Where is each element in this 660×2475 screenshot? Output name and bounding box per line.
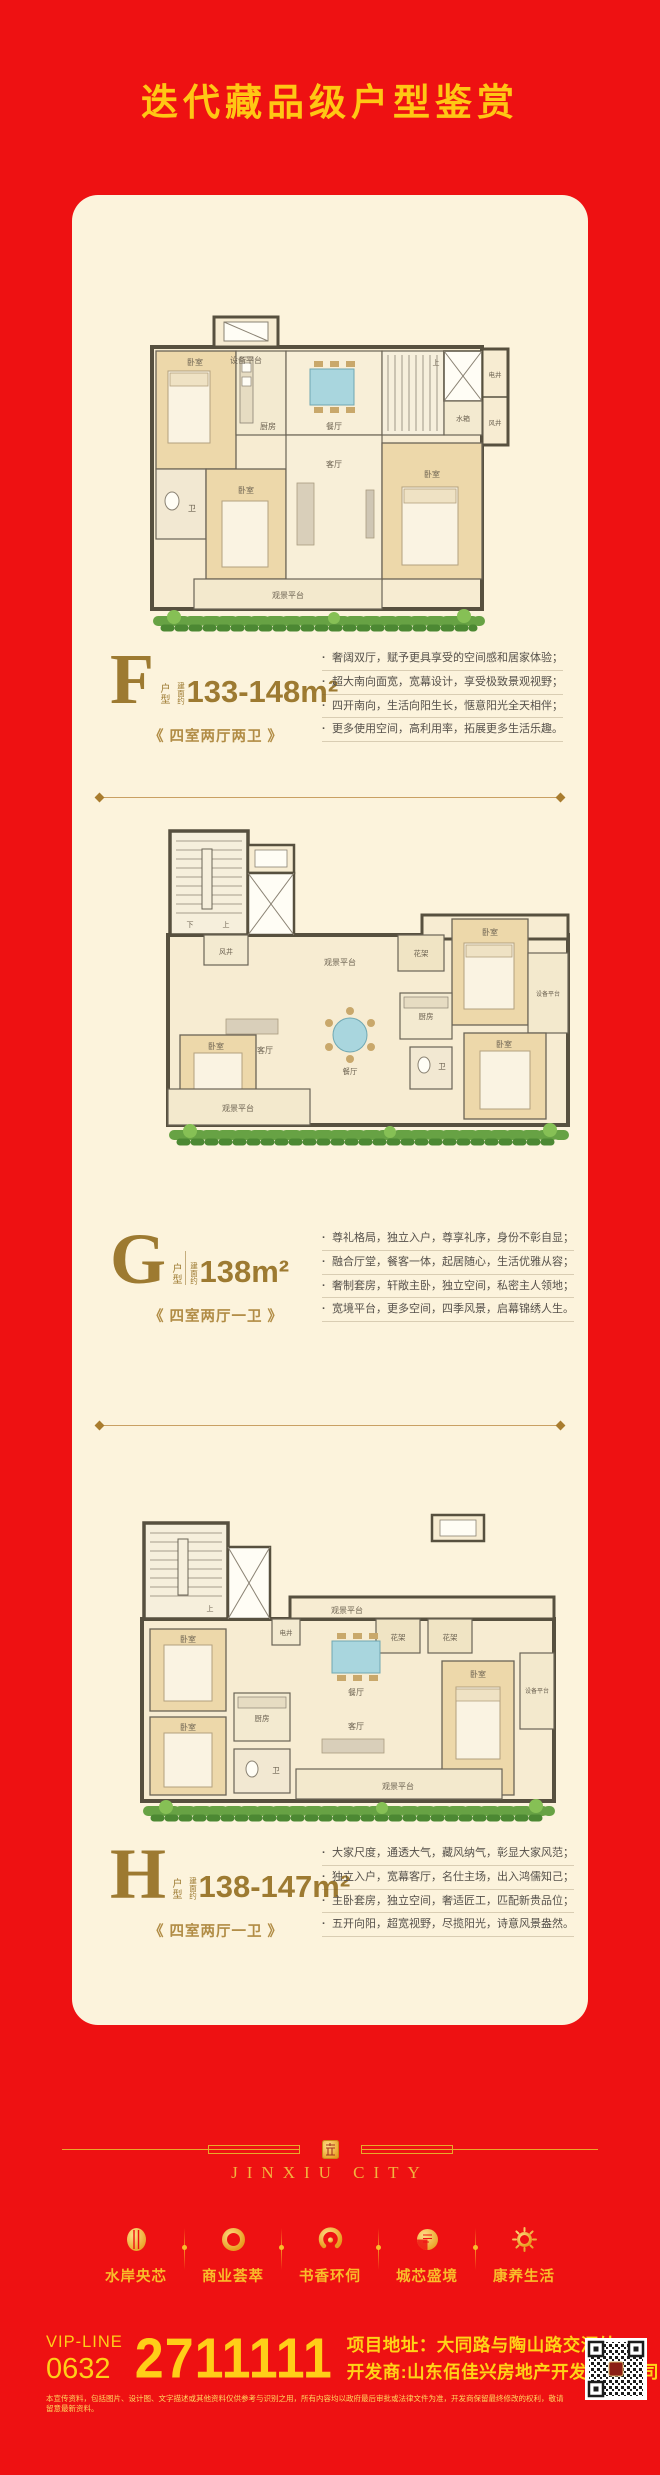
section-divider	[96, 793, 564, 802]
room-label: 餐厅	[348, 1688, 364, 1697]
area-prefix: 建面约	[177, 682, 185, 705]
bullet: 奢阔双厅，赋予更具享受的空间感和居家体验；	[322, 652, 563, 671]
vip-block: VIP-LINE 0632	[46, 2334, 123, 2385]
room-label: 厨房	[255, 1713, 270, 1723]
unit-bullets-h: 大家尺度，通透大气，藏风纳气，彰显大家风范； 独立入户，宽幕客厅，名仕主场，出入…	[322, 1847, 574, 1942]
bullet: 五开向阳，超宽视野，尽揽阳光，诗意风景盎然。	[322, 1918, 574, 1937]
room-label: 花架	[414, 948, 429, 958]
unit-area-f: 133-148m²	[186, 676, 338, 707]
unit-info-g: G 户型 建面约 138m² 《 四室两厅一卫 》 尊礼格局，独立入户，尊享礼序…	[110, 1230, 548, 1327]
room-label: 观景平台	[272, 590, 304, 600]
unit-letter-f: F	[110, 650, 154, 709]
diamond-ornament	[556, 793, 566, 803]
room-label: 厨房	[260, 421, 276, 431]
floorplan-h: 上 观景平台 花架 花架 设备平台 电井 卧室 卧室 餐厅 客厅 厨房 卫 卧室…	[132, 1511, 577, 1841]
qr-code	[585, 2338, 647, 2400]
room-label: 客厅	[257, 1045, 273, 1055]
bullet: 融合厅堂，餐客一体，起居随心，生活优雅从容；	[322, 1256, 574, 1275]
feature-label: 城芯盛境	[379, 2265, 475, 2286]
floorplan-f: 设备平台 水箱 电井 风井 上 卧室 卫 卧室 厨房 餐厅 客厅 卧室 观景平台	[134, 305, 514, 657]
contact-row: VIP-LINE 0632 2711111 项目地址：大同路与陶山路交汇处 开发…	[46, 2332, 659, 2386]
feature-label: 水岸央芯	[88, 2265, 184, 2286]
area-prefix: 建面约	[190, 1262, 198, 1285]
feature-label: 书香环伺	[282, 2265, 378, 2286]
feature-separator	[281, 2228, 282, 2270]
bullet: 独立入户，宽幕客厅，名仕主场，出入鸿儒知己；	[322, 1871, 574, 1890]
unit-bullets-f: 奢阔双厅，赋予更具享受的空间感和居家体验； 超大南向面宽，宽幕设计，享受极致景观…	[322, 652, 563, 747]
content-card: 设备平台 水箱 电井 风井 上 卧室 卫 卧室 厨房 餐厅 客厅 卧室 观景平台…	[72, 195, 588, 2025]
unit-left-h: H 户型 建面约 138-147m² 《 四室两厅一卫 》	[110, 1845, 322, 1942]
feature-label: 商业荟萃	[185, 2265, 281, 2286]
unit-left-f: F 户型 建面约 133-148m² 《 四室两厅两卫 》	[110, 650, 322, 747]
footer-ornament-row	[62, 2140, 598, 2158]
room-label: 卧室	[180, 1722, 196, 1732]
feature-water: 水岸央芯	[88, 2226, 184, 2286]
unit-info-f: F 户型 建面约 133-148m² 《 四室两厅两卫 》 奢阔双厅，赋予更具享…	[110, 650, 548, 747]
room-label: 上	[223, 920, 230, 929]
feature-label: 康养生活	[476, 2265, 572, 2286]
unit-suffix: 户型	[170, 1878, 180, 1900]
unit-area-g: 138m²	[200, 1256, 290, 1287]
room-label: 卧室	[180, 1634, 196, 1644]
brand-name: JINXIU CITY	[0, 2163, 660, 2183]
feature-separator	[378, 2228, 379, 2270]
ornament-bar	[361, 2145, 453, 2154]
room-label: 设备平台	[230, 355, 262, 365]
room-label: 卧室	[238, 485, 254, 495]
room-label: 卧室	[208, 1041, 224, 1051]
bullet: 超大南向面宽，宽幕设计，享受极致景观视野；	[322, 676, 563, 695]
bullet: 奢制套房，轩敞主卧，独立空间，私密主人领地；	[322, 1280, 574, 1299]
feature-city: 城芯盛境	[379, 2226, 475, 2286]
book-ring-icon	[317, 2226, 344, 2253]
unit-info-h: H 户型 建面约 138-147m² 《 四室两厅一卫 》 大家尺度，通透大气，…	[110, 1845, 548, 1942]
page-title: 迭代藏品级户型鉴赏	[0, 72, 660, 126]
qr-center-logo	[609, 2362, 623, 2376]
water-core-icon	[123, 2226, 150, 2253]
room-label: 客厅	[326, 459, 342, 469]
room-label: 卫	[272, 1766, 280, 1775]
unit-rooms-g: 《 四室两厅一卫 》	[110, 1305, 322, 1326]
room-label: 观景平台	[222, 1103, 254, 1113]
room-label: 设备平台	[536, 990, 560, 998]
feature-books: 书香环伺	[282, 2226, 378, 2286]
room-label: 卧室	[496, 1039, 512, 1049]
disclaimer-text: 本宣传资料，包括图片、设计图、文字描述或其他资料仅供参考与识别之用，所有内容均以…	[46, 2394, 566, 2414]
room-label: 风井	[489, 418, 503, 427]
brand-seal-icon	[322, 2140, 339, 2159]
room-label: 卧室	[187, 357, 203, 367]
room-label: 观景平台	[382, 1781, 414, 1791]
area-code: 0632	[46, 2354, 123, 2384]
divider-line	[185, 1251, 186, 1285]
room-label: 卧室	[424, 469, 440, 479]
bullet: 主卧套房，独立空间，奢适匠工，匹配新贵品位；	[322, 1895, 574, 1914]
unit-rooms-f: 《 四室两厅两卫 》	[110, 725, 322, 746]
unit-letter-h: H	[110, 1845, 166, 1904]
room-label: 观景平台	[324, 957, 356, 967]
room-label: 花架	[391, 1632, 406, 1642]
floorplan-g: 下 上 风井 观景平台 花架 卧室 设备平台 客厅 餐厅 厨房 卫 卧室 卧室 …	[160, 823, 580, 1151]
room-label: 餐厅	[343, 1067, 358, 1076]
room-label: 设备平台	[525, 1687, 549, 1695]
ornament-bar	[208, 2145, 300, 2154]
unit-letter-g: G	[110, 1230, 166, 1289]
room-label: 水箱	[456, 414, 470, 423]
feature-separator	[184, 2228, 185, 2270]
commerce-ring-icon	[220, 2226, 247, 2253]
diamond-ornament	[556, 1421, 566, 1431]
section-divider	[96, 1421, 564, 1430]
room-label: 厨房	[419, 1011, 434, 1021]
room-label: 下	[187, 921, 194, 929]
unit-suffix: 户型	[170, 1263, 180, 1285]
feature-wellness: 康养生活	[476, 2226, 572, 2286]
room-label: 卫	[438, 1062, 446, 1071]
bullet: 四开南向，生活向阳生长，惬意阳光全天相伴；	[322, 700, 563, 719]
room-label: 卧室	[482, 927, 498, 937]
features-row: 水岸央芯 商业荟萃 书香环伺 城芯盛境 康养生活	[30, 2226, 630, 2286]
bullet: 尊礼格局，独立入户，尊享礼序，身份不彰自显；	[322, 1232, 574, 1251]
unit-rooms-h: 《 四室两厅一卫 》	[110, 1920, 322, 1941]
diamond-ornament	[95, 1421, 105, 1431]
bullet: 大家尺度，通透大气，藏风纳气，彰显大家风范；	[322, 1847, 574, 1866]
room-label: 上	[207, 1604, 214, 1613]
room-label: 上	[433, 358, 440, 367]
bullet: 更多使用空间，高利用率，拓展更多生活乐趣。	[322, 723, 563, 742]
unit-bullets-g: 尊礼格局，独立入户，尊享礼序，身份不彰自显； 融合厅堂，餐客一体，起居随心，生活…	[322, 1232, 574, 1327]
room-label: 客厅	[348, 1721, 364, 1731]
area-prefix: 建面约	[189, 1877, 197, 1900]
room-label: 花架	[443, 1632, 458, 1642]
room-label: 电井	[489, 370, 503, 379]
diamond-ornament	[95, 793, 105, 803]
bullet: 宽境平台，更多空间，四季风景，启幕锦绣人生。	[322, 1303, 574, 1322]
room-label: 卧室	[470, 1669, 486, 1679]
unit-left-g: G 户型 建面约 138m² 《 四室两厅一卫 》	[110, 1230, 322, 1327]
room-label: 餐厅	[326, 422, 342, 431]
room-label: 卫	[188, 504, 196, 513]
feature-commerce: 商业荟萃	[185, 2226, 281, 2286]
feature-separator	[475, 2228, 476, 2270]
vip-line-label: VIP-LINE	[46, 2334, 123, 2351]
phone-number: 2711111	[135, 2331, 333, 2387]
room-label: 电井	[280, 1628, 294, 1637]
city-pie-icon	[414, 2226, 441, 2253]
unit-suffix: 户型	[158, 683, 168, 705]
room-label: 风井	[219, 947, 233, 956]
sun-icon	[511, 2226, 538, 2253]
room-label: 观景平台	[331, 1605, 363, 1615]
